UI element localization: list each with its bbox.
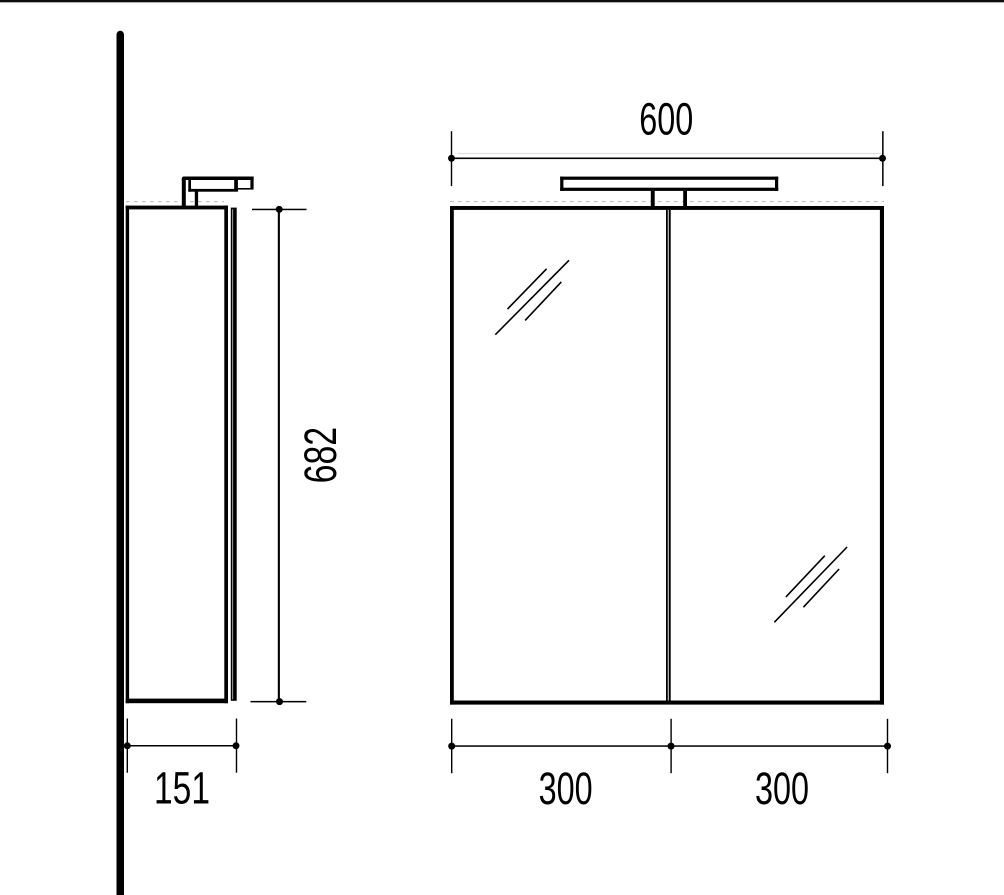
svg-text:151: 151 [154,763,210,814]
svg-text:600: 600 [639,94,693,145]
svg-text:682: 682 [295,427,346,484]
svg-text:300: 300 [539,763,593,814]
svg-text:300: 300 [755,763,809,814]
